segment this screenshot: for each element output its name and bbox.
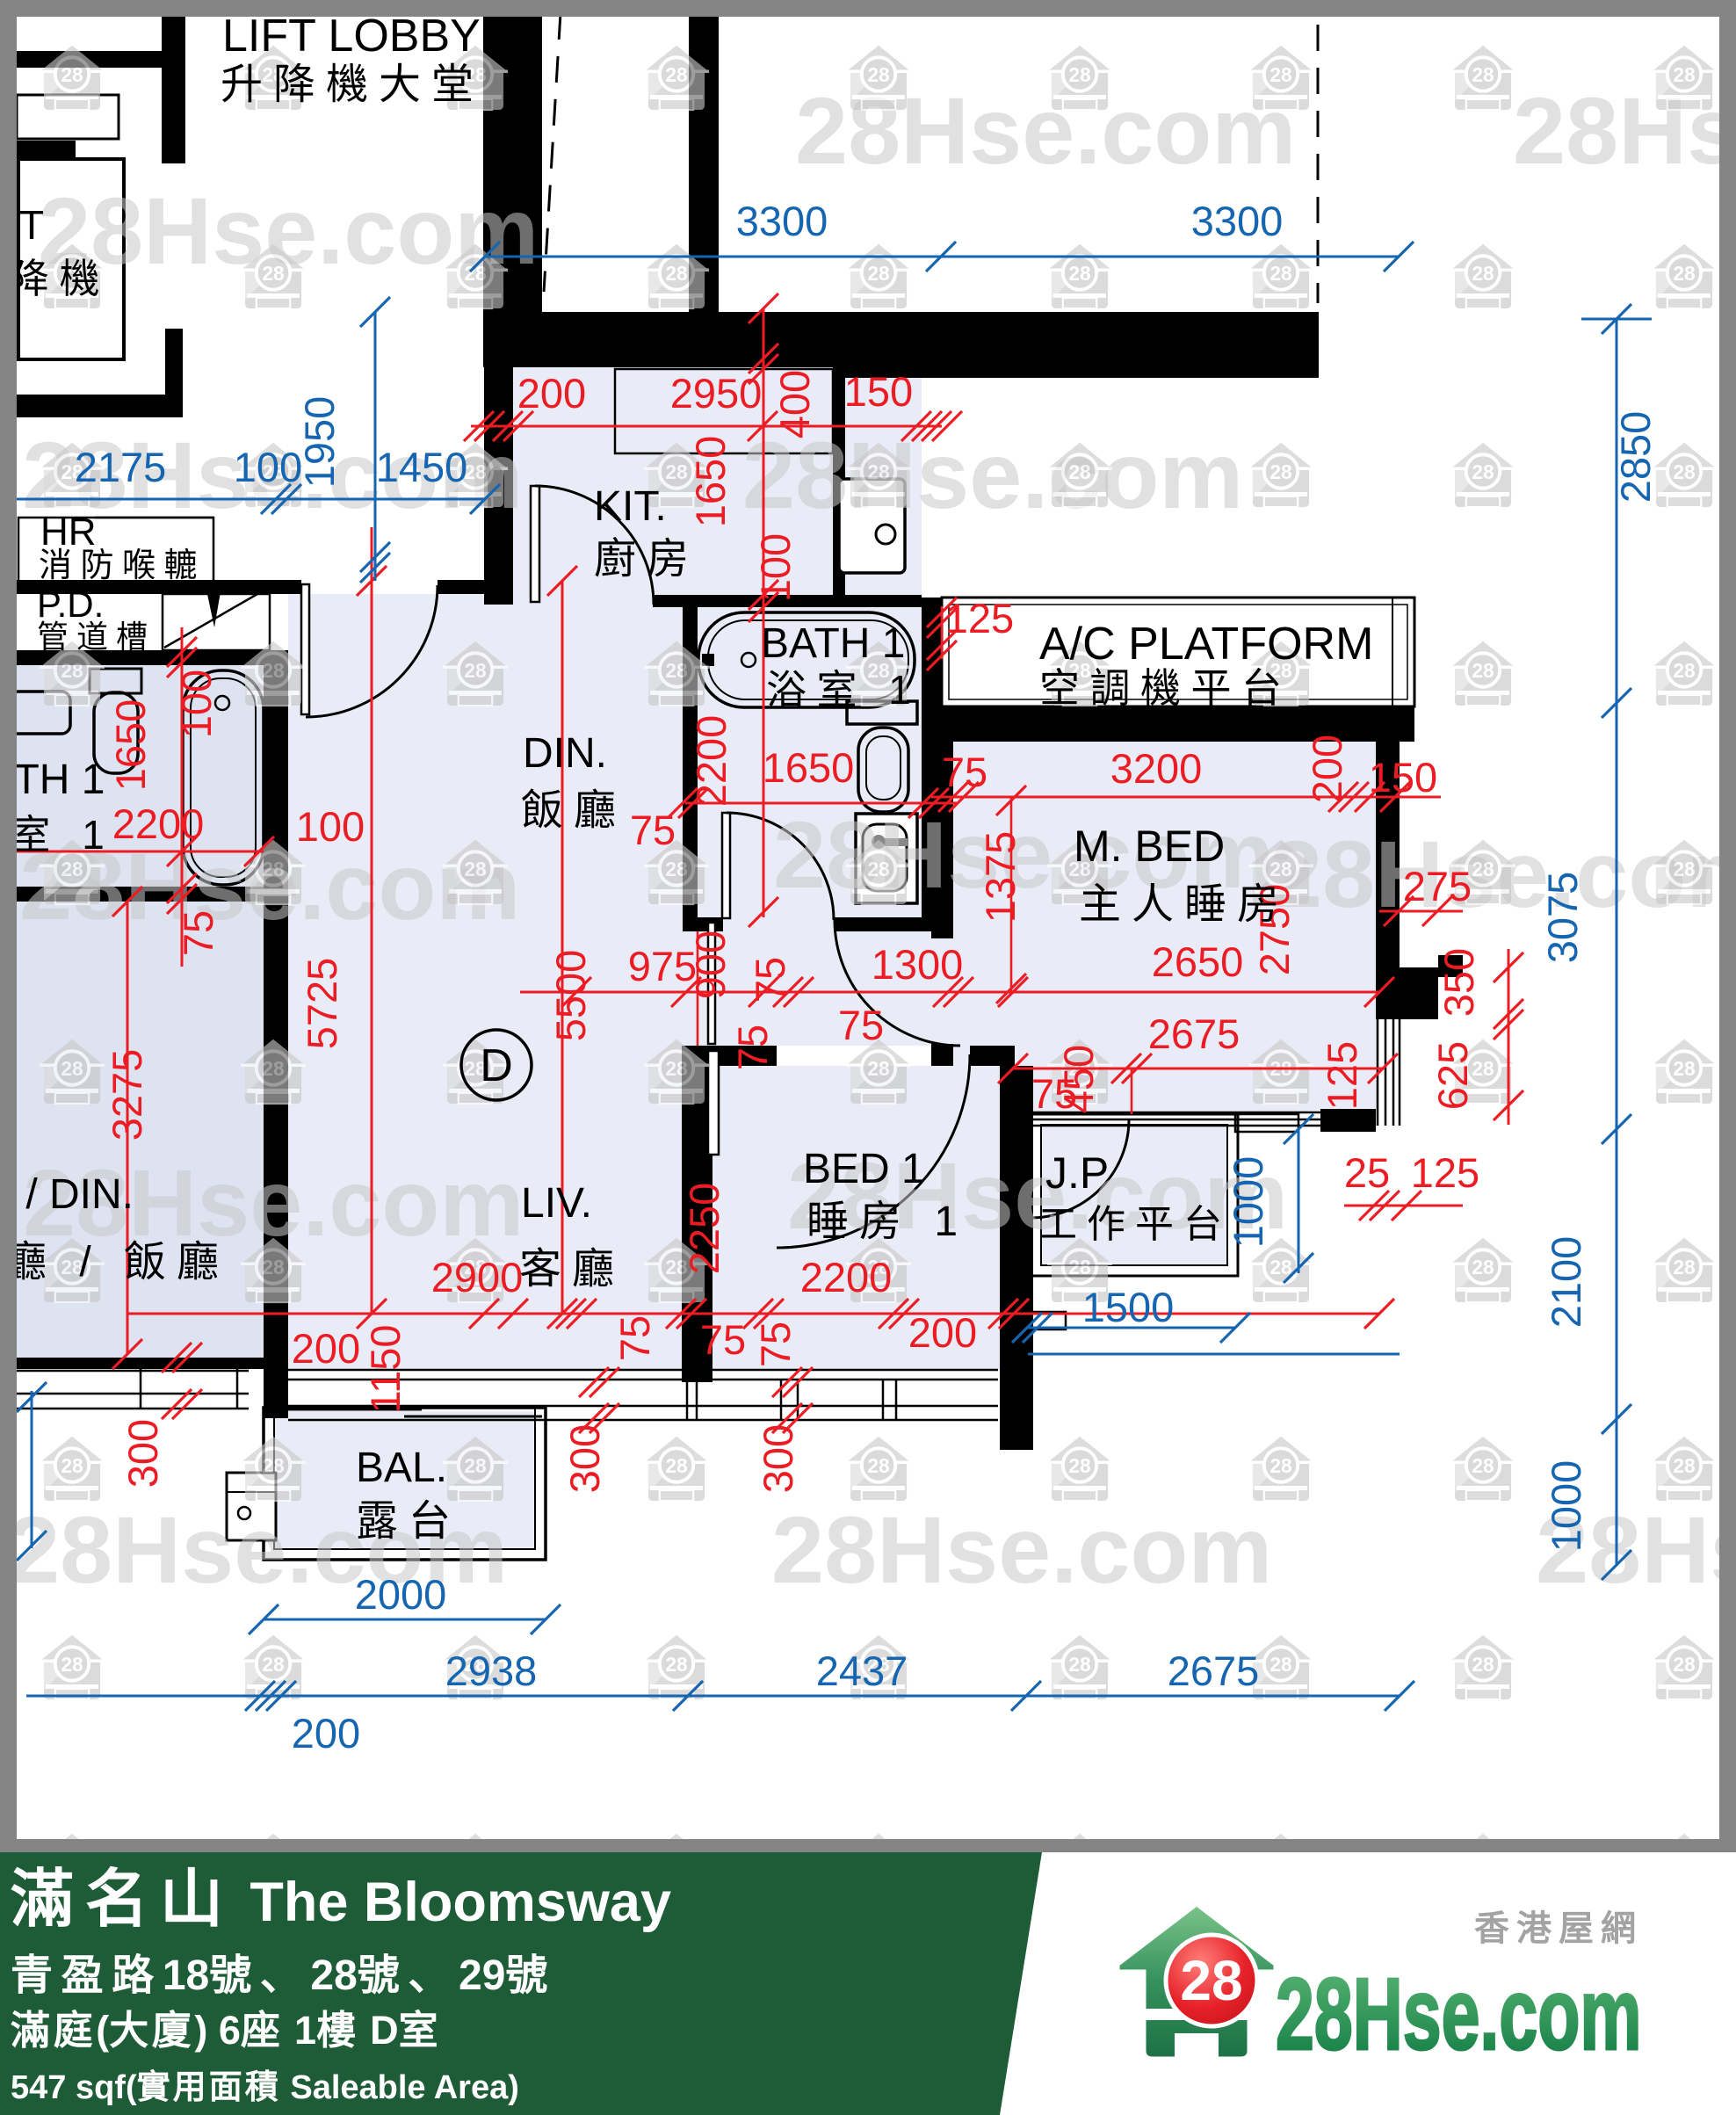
svg-text:BED 1: BED 1 <box>803 1146 925 1192</box>
svg-text:3300: 3300 <box>1191 198 1284 244</box>
svg-text:400: 400 <box>771 370 818 438</box>
svg-text:1650: 1650 <box>687 436 734 528</box>
svg-text:2200: 2200 <box>688 715 734 808</box>
svg-text:3075: 3075 <box>1539 872 1586 964</box>
svg-text:2200: 2200 <box>112 800 205 847</box>
svg-text:100: 100 <box>296 803 365 850</box>
svg-text:管道槽: 管道槽 <box>37 619 156 655</box>
svg-text:300: 300 <box>119 1419 166 1488</box>
svg-text:客廳 / 飯廳: 客廳 / 飯廳 <box>0 1239 229 1286</box>
svg-text:625: 625 <box>1429 1041 1476 1110</box>
svg-text:客廳: 客廳 <box>519 1246 625 1293</box>
svg-text:滿名山 The Bloomsway: 滿名山 The Bloomsway <box>11 1865 671 1935</box>
svg-text:A/C PLATFORM: A/C PLATFORM <box>1039 619 1373 670</box>
svg-text:1300: 1300 <box>872 941 964 988</box>
svg-text:2437: 2437 <box>816 1648 908 1694</box>
svg-text:1375: 1375 <box>977 831 1024 924</box>
svg-text:2675: 2675 <box>1168 1648 1260 1694</box>
svg-text:香港屋網: 香港屋網 <box>1474 1909 1643 1948</box>
svg-text:28Hse.com: 28Hse.com <box>1276 1958 1642 2072</box>
svg-text:100: 100 <box>234 444 302 490</box>
svg-text:2850: 2850 <box>1612 411 1659 503</box>
svg-text:1650: 1650 <box>107 699 154 792</box>
svg-text:28Hse.com: 28Hse.com <box>771 1496 1272 1603</box>
svg-text:J.P: J.P <box>1045 1148 1109 1198</box>
svg-text:2650: 2650 <box>1152 938 1244 985</box>
svg-text:1450: 1450 <box>376 444 468 490</box>
svg-text:廚房: 廚房 <box>594 536 699 583</box>
svg-text:3300: 3300 <box>736 198 828 244</box>
svg-text:D: D <box>480 1040 513 1091</box>
svg-text:75: 75 <box>747 957 793 1003</box>
svg-text:BATH 1: BATH 1 <box>761 620 905 667</box>
svg-text:2175: 2175 <box>75 444 167 490</box>
svg-text:T: T <box>19 202 44 248</box>
svg-text:75: 75 <box>942 749 987 795</box>
svg-text:75: 75 <box>729 1025 776 1070</box>
svg-text:3200: 3200 <box>1110 745 1203 792</box>
svg-text:2000: 2000 <box>355 1571 447 1618</box>
svg-text:75: 75 <box>630 807 676 853</box>
svg-text:2950: 2950 <box>670 370 763 416</box>
svg-text:DIN.: DIN. <box>523 730 607 777</box>
svg-text:200: 200 <box>1304 735 1350 803</box>
svg-text:75: 75 <box>175 910 221 956</box>
svg-text:75: 75 <box>838 1002 884 1048</box>
svg-text:LIFT LOBBY: LIFT LOBBY <box>222 11 481 62</box>
svg-text:LIV.: LIV. <box>521 1180 592 1227</box>
svg-text:3275: 3275 <box>104 1049 150 1141</box>
svg-text:1500: 1500 <box>1082 1284 1175 1330</box>
svg-text:1950: 1950 <box>296 396 343 489</box>
svg-text:300: 300 <box>755 1424 801 1493</box>
svg-text:浴室 1: 浴室 1 <box>766 667 921 713</box>
svg-text:125: 125 <box>945 595 1014 641</box>
svg-text:900: 900 <box>687 931 734 999</box>
svg-text:450: 450 <box>1055 1045 1102 1113</box>
svg-text:BAL.: BAL. <box>356 1445 447 1491</box>
svg-text:150: 150 <box>844 368 913 415</box>
svg-text:工作平台: 工作平台 <box>1038 1203 1232 1246</box>
svg-text:1650: 1650 <box>763 744 855 791</box>
svg-text:飯廳: 飯廳 <box>521 787 626 834</box>
svg-text:5500: 5500 <box>547 950 594 1042</box>
svg-text:200: 200 <box>517 370 586 416</box>
svg-text:5725: 5725 <box>299 958 345 1050</box>
svg-text:300: 300 <box>561 1424 608 1493</box>
svg-text:KIT.: KIT. <box>594 483 667 530</box>
svg-text:主人睡房: 主人睡房 <box>1079 881 1290 928</box>
svg-text:露台: 露台 <box>356 1498 461 1545</box>
svg-text:青盈路18號、28號、29號: 青盈路18號、28號、29號 <box>11 1952 556 1999</box>
svg-text:200: 200 <box>292 1710 360 1756</box>
svg-text:2675: 2675 <box>1148 1010 1241 1057</box>
svg-text:200: 200 <box>292 1325 360 1372</box>
svg-text:2900: 2900 <box>431 1254 524 1300</box>
svg-text:LIV. / DIN.: LIV. / DIN. <box>0 1171 134 1218</box>
svg-text:2100: 2100 <box>1543 1236 1589 1329</box>
svg-text:125: 125 <box>1319 1041 1365 1110</box>
svg-text:275: 275 <box>1403 863 1472 909</box>
svg-text:浴室 1: 浴室 1 <box>0 812 114 858</box>
svg-text:2200: 2200 <box>800 1254 893 1300</box>
svg-text:升降機大堂: 升降機大堂 <box>221 62 484 108</box>
svg-text:350: 350 <box>1436 948 1482 1017</box>
svg-text:睡房 1: 睡房 1 <box>807 1199 968 1245</box>
svg-text:200: 200 <box>908 1309 977 1356</box>
svg-text:75: 75 <box>611 1315 658 1361</box>
svg-text:消防喉轆: 消防喉轆 <box>39 547 206 584</box>
svg-text:2250: 2250 <box>681 1183 727 1275</box>
svg-text:28: 28 <box>1180 1949 1242 2012</box>
svg-text:降機: 降機 <box>9 256 110 301</box>
svg-text:75: 75 <box>752 1322 799 1367</box>
svg-text:75: 75 <box>700 1316 746 1363</box>
svg-text:100: 100 <box>752 533 799 602</box>
svg-text:2938: 2938 <box>445 1648 538 1694</box>
svg-text:M. BED: M. BED <box>1074 822 1225 871</box>
svg-text:1150: 1150 <box>362 1324 409 1413</box>
svg-text:1000: 1000 <box>1543 1460 1589 1553</box>
svg-text:100: 100 <box>173 670 220 738</box>
svg-text:25: 25 <box>1344 1149 1390 1196</box>
svg-text:空調機平台: 空調機平台 <box>1039 665 1292 711</box>
svg-text:滿庭(大廈) 6座 1樓 D室: 滿庭(大廈) 6座 1樓 D室 <box>11 2008 441 2053</box>
svg-text:150: 150 <box>1369 754 1437 800</box>
svg-text:125: 125 <box>1411 1149 1479 1196</box>
svg-text:547 sqf(實用面積 Saleable Area): 547 sqf(實用面積 Saleable Area) <box>11 2069 519 2106</box>
